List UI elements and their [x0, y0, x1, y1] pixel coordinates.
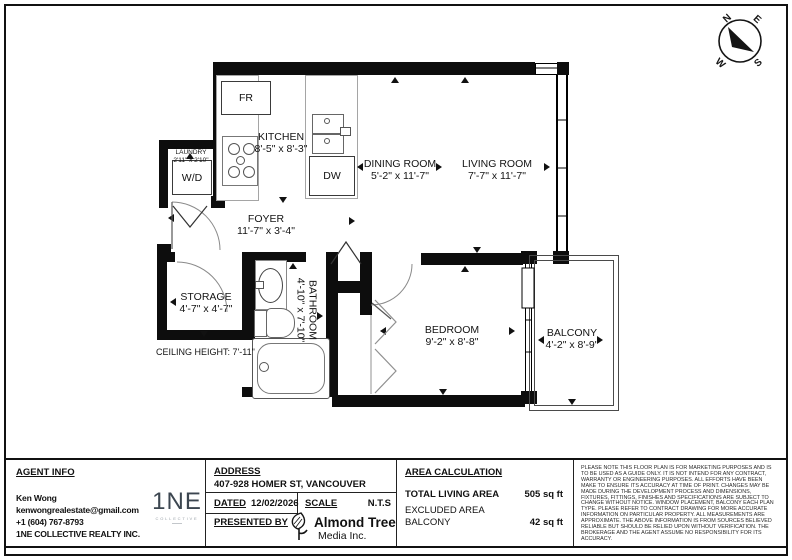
room-name: DINING ROOM — [364, 158, 436, 170]
dimension-arrow-icon — [186, 153, 194, 159]
compass-west-label: W — [713, 56, 728, 71]
wall — [213, 62, 535, 75]
stove-burner — [228, 166, 240, 178]
total-living-area-label: TOTAL LIVING AREA — [405, 489, 499, 500]
excluded-balcony-value: 42 sq ft — [493, 517, 563, 528]
washer-dryer-label: W/D — [182, 172, 202, 184]
dimension-arrow-icon — [461, 77, 469, 83]
compass-rose: N E S W — [704, 6, 776, 78]
room-name: BEDROOM — [425, 324, 479, 336]
room-dims: 11'-7" x 3'-4" — [237, 225, 295, 237]
wall — [557, 62, 569, 75]
stove-burner — [236, 156, 245, 165]
fridge: FR — [221, 81, 271, 115]
dated-heading: DATED — [214, 498, 246, 509]
room-name: FOYER — [237, 213, 295, 225]
ceiling-height-note: CEILING HEIGHT: 7'-11" — [156, 347, 255, 357]
address-value: 407-928 HOMER ST, VANCOUVER — [214, 479, 366, 490]
kitchen-sink — [312, 134, 344, 154]
divider — [205, 513, 297, 514]
room-dims: 5'-2" x 11'-7" — [364, 170, 436, 182]
stove-burner — [243, 166, 255, 178]
fridge-label: FR — [239, 92, 253, 104]
wall — [159, 140, 168, 203]
agent-phone: +1 (604) 767-8793 — [16, 517, 84, 527]
compass-south-label: S — [752, 57, 765, 70]
almond-tree-leaf-icon — [287, 511, 313, 541]
washer-dryer: W/D — [172, 160, 212, 195]
room-name: BATHROOM — [306, 278, 318, 343]
dimension-arrow-icon — [391, 77, 399, 83]
room-label-balcony: BALCONY 4'-2" x 8'-9" — [546, 327, 599, 352]
bathroom-faucet — [255, 281, 264, 289]
window — [556, 75, 568, 253]
room-name: KITCHEN — [255, 131, 308, 143]
scale-value: N.T.S — [321, 498, 391, 509]
dimension-arrow-icon — [317, 312, 323, 320]
dimension-arrow-icon — [349, 217, 355, 225]
dishwasher: DW — [309, 156, 355, 196]
room-label-storage: STORAGE 4'-7" x 4'-7" — [180, 291, 233, 316]
dishwasher-label: DW — [323, 170, 341, 182]
brokerage-logo-subtext: COLLECTIVE — [152, 516, 202, 521]
wall — [360, 252, 372, 315]
dimension-arrow-icon — [168, 214, 174, 222]
dimension-arrow-icon — [439, 389, 447, 395]
room-dims: 4'-7" x 4'-7" — [180, 303, 233, 315]
dimension-arrow-icon — [357, 163, 363, 171]
room-name: LIVING ROOM — [462, 158, 532, 170]
room-name: BALCONY — [546, 327, 599, 339]
agent-email: kenwongrealestate@gmail.com — [16, 505, 139, 515]
dimension-arrow-icon — [380, 327, 386, 335]
room-dims: 7'-7" x 11'-7" — [462, 170, 532, 182]
stove-burner — [228, 143, 240, 155]
dimension-arrow-icon — [461, 266, 469, 272]
dimension-arrow-icon — [436, 163, 442, 171]
wall — [332, 395, 525, 407]
area-calculation-heading: AREA CALCULATION — [405, 467, 502, 478]
presented-by-heading: PRESENTED BY — [214, 517, 288, 528]
sink-drain — [324, 118, 330, 124]
dimension-arrow-icon — [170, 298, 176, 306]
divider — [573, 460, 574, 546]
media-company-subname: Media Inc. — [318, 530, 366, 542]
toilet-bowl — [266, 308, 295, 338]
wall — [157, 252, 175, 262]
media-company-name: Almond Tree — [314, 515, 396, 530]
room-dims: 4'-2" x 8'-9" — [546, 339, 599, 351]
agent-name: Ken Wong — [16, 493, 57, 503]
dimension-arrow-icon — [538, 336, 544, 344]
room-label-kitchen: KITCHEN 8'-5" x 8'-3" — [255, 131, 308, 156]
dimension-arrow-icon — [279, 197, 287, 203]
brokerage-logo-text: 1NE — [152, 490, 202, 514]
total-living-area-value: 505 sq ft — [493, 489, 563, 500]
dimension-arrow-icon — [509, 327, 515, 335]
title-block: AGENT INFO Ken Wong kenwongrealestate@gm… — [6, 458, 786, 548]
disclaimer-text: PLEASE NOTE THIS FLOOR PLAN IS FOR MARKE… — [581, 466, 778, 543]
floor-plan-sheet: FR DW W/D KITCHEN 8'-5" x 8'-3" DINING R… — [0, 0, 792, 560]
divider — [396, 460, 397, 546]
tub-faucet — [259, 362, 269, 372]
brokerage-logo-rule — [172, 523, 182, 524]
divider — [205, 460, 206, 546]
room-label-foyer: FOYER 11'-7" x 3'-4" — [237, 213, 295, 238]
excluded-balcony-label: BALCONY — [405, 517, 450, 528]
stove-burner — [243, 143, 255, 155]
agent-info-heading: AGENT INFO — [16, 467, 75, 478]
wall — [157, 252, 167, 340]
dimension-arrow-icon — [544, 163, 550, 171]
dimension-arrow-icon — [597, 336, 603, 344]
room-dims: 4'-10" x 7'-10" — [294, 278, 306, 343]
agent-company: 1NE COLLECTIVE REALTY INC. — [16, 529, 140, 539]
room-dims: 9'-2" x 8'-8" — [425, 336, 479, 348]
brokerage-logo: 1NE COLLECTIVE — [152, 490, 202, 524]
dimension-arrow-icon — [473, 247, 481, 253]
divider — [205, 492, 396, 493]
room-dims: 8'-5" x 8'-3" — [255, 143, 308, 155]
excluded-area-label: EXCLUDED AREA — [405, 505, 485, 516]
dated-value: 12/02/2026 — [251, 498, 299, 509]
dimension-arrow-icon — [289, 263, 297, 269]
dimension-arrow-icon — [568, 399, 576, 405]
room-name: STORAGE — [180, 291, 233, 303]
sink-faucet — [340, 127, 351, 136]
sink-drain — [324, 138, 330, 144]
room-label-dining: DINING ROOM 5'-2" x 11'-7" — [364, 158, 436, 183]
room-label-living: LIVING ROOM 7'-7" x 11'-7" — [462, 158, 532, 183]
address-heading: ADDRESS — [214, 466, 260, 477]
room-label-bathroom: BATHROOM 4'-10" x 7'-10" — [294, 278, 319, 343]
dimension-arrow-icon — [200, 331, 208, 337]
wall — [421, 253, 523, 265]
room-label-bedroom: BEDROOM 9'-2" x 8'-8" — [425, 324, 479, 349]
wall — [159, 196, 168, 208]
